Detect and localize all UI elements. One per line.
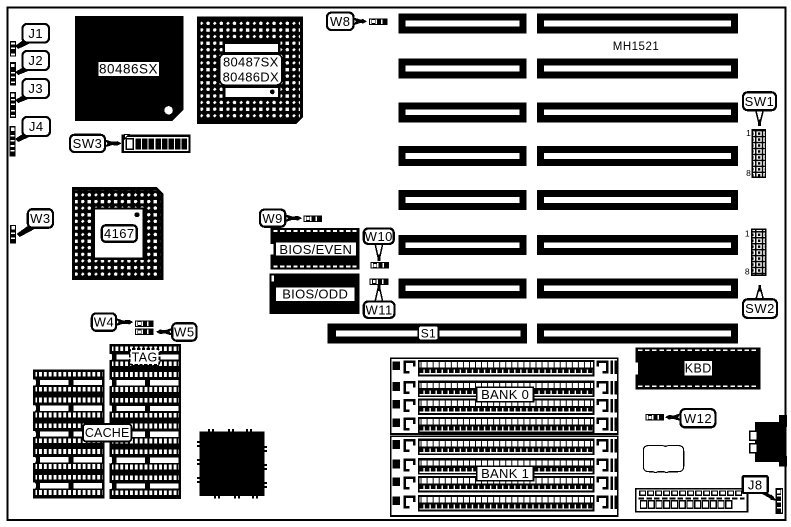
svg-text:8: 8 <box>746 168 751 178</box>
svg-text:W5: W5 <box>174 325 195 340</box>
svg-text:J1: J1 <box>28 26 43 41</box>
svg-text:BIOS/EVEN: BIOS/EVEN <box>279 242 352 257</box>
svg-text:W12: W12 <box>684 411 712 426</box>
svg-text:W11: W11 <box>365 302 392 317</box>
svg-text:J3: J3 <box>28 81 43 96</box>
svg-text:4167: 4167 <box>104 226 135 241</box>
svg-text:W3: W3 <box>30 211 51 226</box>
svg-text:CACHE: CACHE <box>85 426 130 440</box>
svg-text:BANK 0: BANK 0 <box>481 387 529 402</box>
svg-text:SW2: SW2 <box>745 301 775 316</box>
svg-text:SW1: SW1 <box>745 94 775 109</box>
svg-text:1: 1 <box>745 228 750 238</box>
svg-text:W10: W10 <box>365 229 393 244</box>
svg-text:80487SX: 80487SX <box>223 55 279 70</box>
svg-text:BIOS/ODD: BIOS/ODD <box>282 287 348 302</box>
svg-text:BANK 1: BANK 1 <box>481 466 529 481</box>
svg-text:W8: W8 <box>330 14 351 29</box>
svg-text:SW3: SW3 <box>73 136 103 151</box>
svg-text:J8: J8 <box>748 477 763 492</box>
svg-text:W9: W9 <box>262 211 283 226</box>
svg-text:1: 1 <box>746 128 751 138</box>
svg-text:KBD: KBD <box>685 362 712 376</box>
svg-text:S1: S1 <box>421 326 436 340</box>
svg-text:80486DX: 80486DX <box>223 69 279 84</box>
svg-text:W4: W4 <box>94 315 115 330</box>
svg-text:TAG: TAG <box>132 351 158 365</box>
svg-text:J4: J4 <box>29 119 44 134</box>
svg-text:MH1521: MH1521 <box>613 41 659 53</box>
svg-text:8: 8 <box>745 267 750 277</box>
svg-text:80486SX: 80486SX <box>99 62 158 77</box>
svg-text:J2: J2 <box>28 53 43 68</box>
